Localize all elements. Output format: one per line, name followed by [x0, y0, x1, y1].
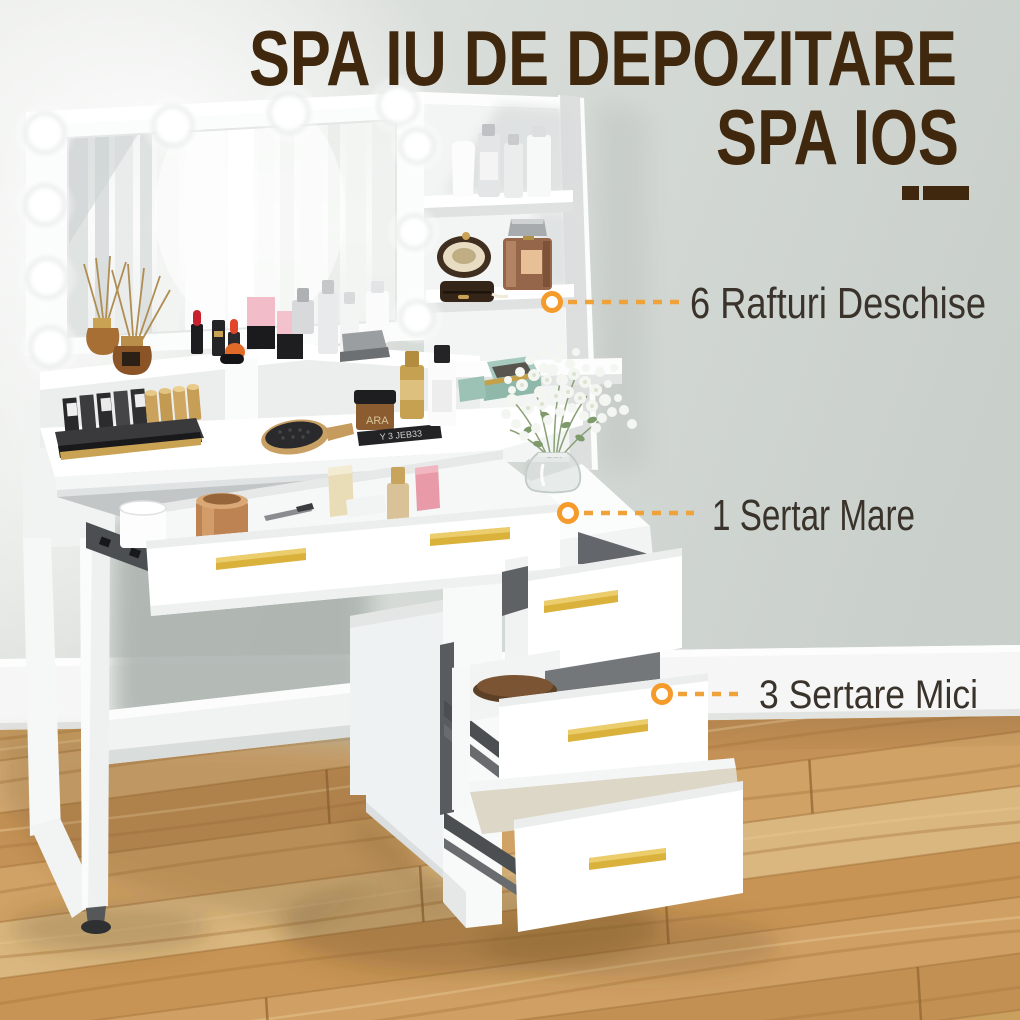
- svg-text:6 Rafturi Deschise: 6 Rafturi Deschise: [690, 279, 986, 328]
- svg-text:ARA: ARA: [366, 415, 389, 427]
- svg-text:3 Sertare Mici: 3 Sertare Mici: [759, 673, 978, 717]
- svg-text:1 Sertar Mare: 1 Sertar Mare: [712, 491, 915, 540]
- svg-text:SPA IOS: SPA IOS: [716, 93, 959, 181]
- svg-text:SPA IU DE DEPOZITARE: SPA IU DE DEPOZITARE: [249, 14, 957, 102]
